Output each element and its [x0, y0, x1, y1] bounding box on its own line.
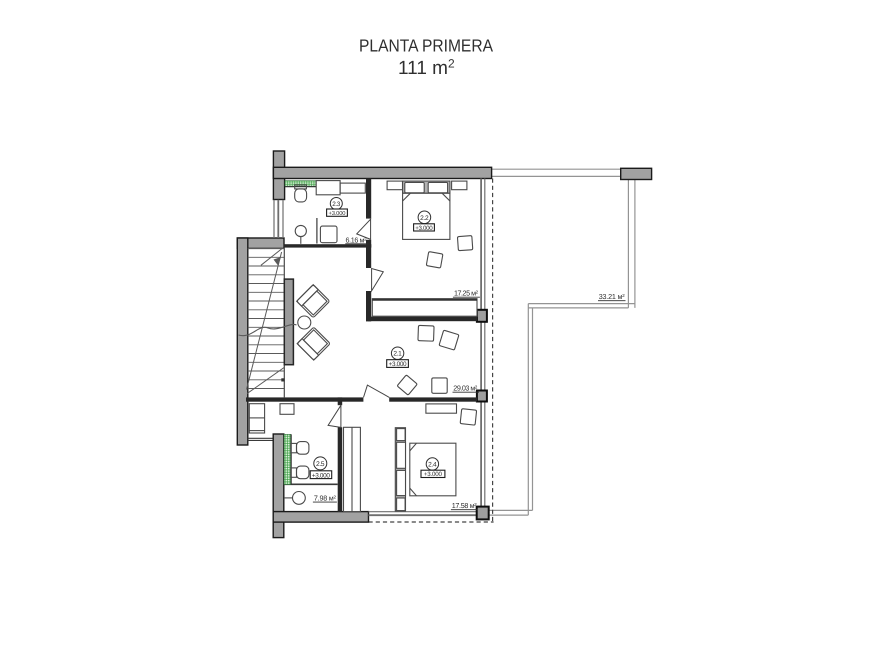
svg-text:33.21 м²: 33.21 м²	[599, 292, 626, 301]
svg-text:6.16 м²: 6.16 м²	[346, 235, 368, 244]
svg-text:+3.000: +3.000	[415, 225, 433, 232]
svg-text:7.98 м²: 7.98 м²	[314, 494, 337, 503]
svg-text:2.3: 2.3	[332, 201, 340, 208]
svg-text:29.03 м²: 29.03 м²	[453, 384, 478, 393]
svg-text:2.1: 2.1	[393, 351, 402, 358]
svg-text:+3.000: +3.000	[312, 472, 330, 479]
svg-text:111 m2: 111 m2	[398, 57, 455, 80]
svg-text:+3.000: +3.000	[329, 210, 346, 217]
svg-text:17.58 м²: 17.58 м²	[452, 501, 478, 510]
svg-text:PLANTA PRIMERA: PLANTA PRIMERA	[359, 36, 493, 56]
svg-text:+3.000: +3.000	[424, 471, 443, 478]
svg-text:+3.000: +3.000	[389, 361, 407, 368]
svg-text:2.4: 2.4	[428, 462, 437, 469]
svg-text:2.5: 2.5	[316, 461, 325, 468]
svg-text:2.2: 2.2	[420, 215, 429, 222]
svg-text:17.25 м²: 17.25 м²	[454, 289, 479, 298]
